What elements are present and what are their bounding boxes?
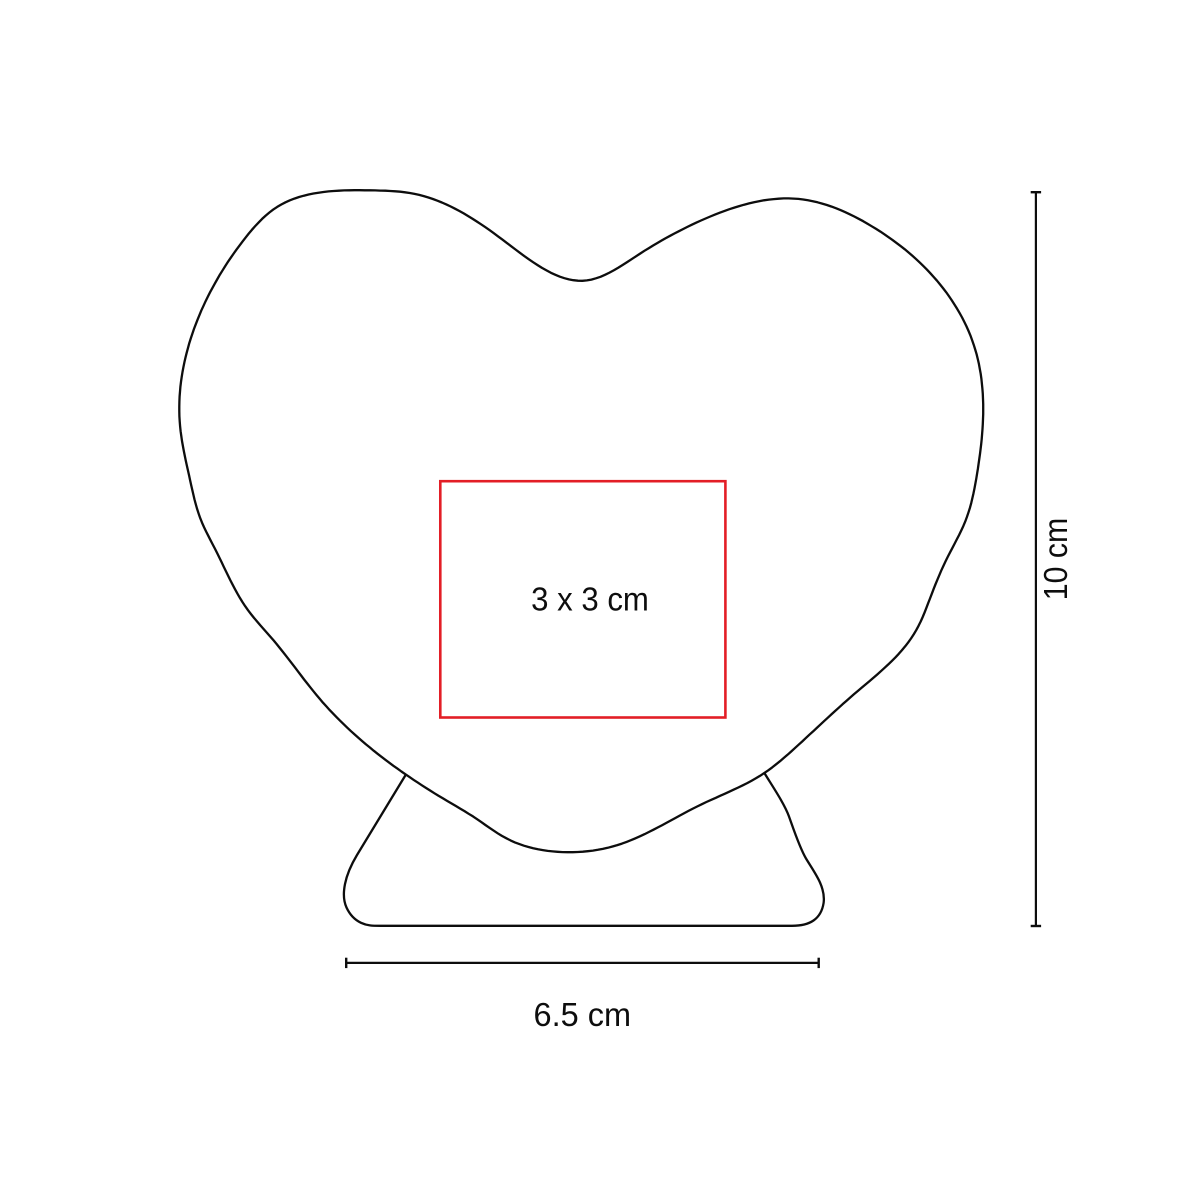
svg-text:6.5 cm: 6.5 cm bbox=[534, 996, 632, 1033]
svg-text:3 x 3 cm: 3 x 3 cm bbox=[531, 580, 649, 617]
svg-text:10 cm: 10 cm bbox=[1037, 518, 1074, 600]
